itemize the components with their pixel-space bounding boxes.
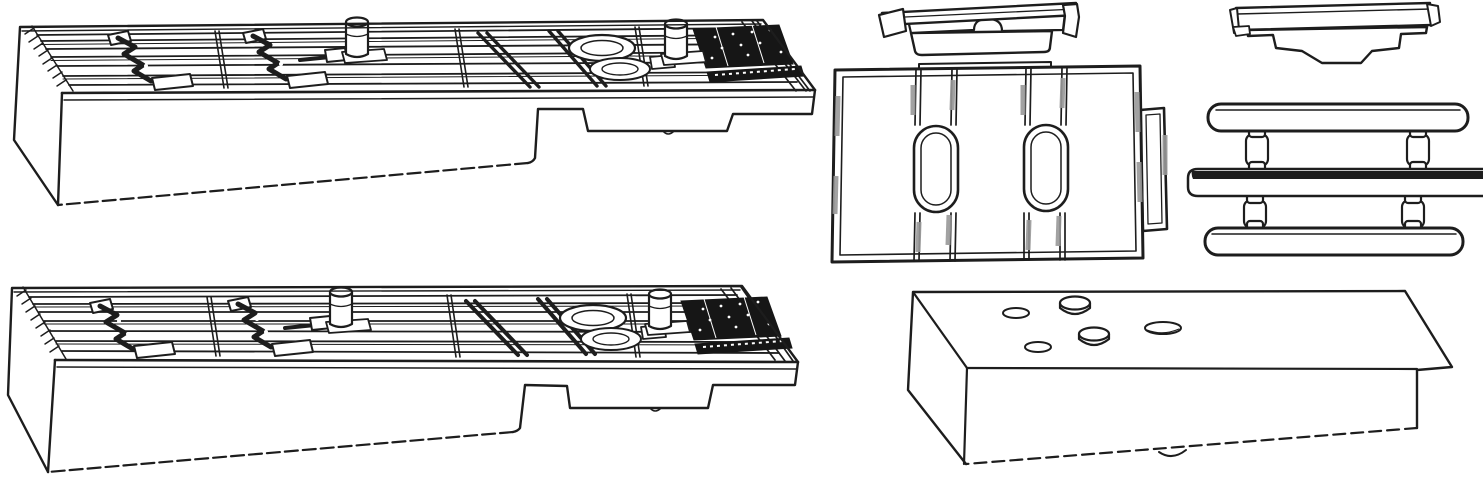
part-arch-notch-cap: Small stepped cap with an arched notch, … [879,3,1079,55]
cap-skirt [911,31,1052,55]
dome-boss-icon [1060,297,1090,315]
oval-slot [914,126,958,212]
part-slotted-adapter-plate: Flat adapter plate with two oval slots, … [832,62,1167,262]
sprue-pin [1407,127,1429,173]
part-boss-wedge-block: Plain wedge spacer block with two round … [908,291,1452,464]
sprue-pin [1246,127,1268,173]
part-lower-ribbed-wedge-plate: Ribbed wedge base plate, lower left, nea… [8,286,798,472]
cap-left-step [1233,26,1250,36]
grip-pad [681,297,792,354]
part-outline-fill [908,291,1452,464]
cap-right-end [1063,4,1079,37]
oval-slot [1024,125,1068,211]
top-rail-bar [1208,104,1468,131]
part-upper-ribbed-wedge-plate: Ribbed wedge base plate, upper left, iso… [14,18,815,206]
bottom-rail-bar [1205,228,1463,255]
sprue-pin [1402,193,1424,232]
dome-boss-icon [1079,328,1109,346]
diagram-canvas: Ribbed wedge base plate, upper left, iso… [0,0,1483,480]
cap-skirt [1247,27,1427,63]
cap-left-flap [879,9,906,37]
part-zigzag-skirt-cap: Small cap with a stepped zigzag skirt, t… [1230,3,1440,63]
part-pin-rail-sprue: Three horizontal rails joined by four sm… [1188,104,1483,255]
middle-rail-bar [1188,169,1483,196]
parts-diagram: Ribbed wedge base plate, upper left, iso… [0,0,1483,480]
sprue-pin [1244,193,1266,232]
cap-top-bar [1236,3,1432,30]
bottom-edge-bump [1159,450,1186,456]
part-outline-fill [8,286,798,472]
flat-oval-boss [1145,322,1181,334]
plate-outline [832,66,1143,262]
